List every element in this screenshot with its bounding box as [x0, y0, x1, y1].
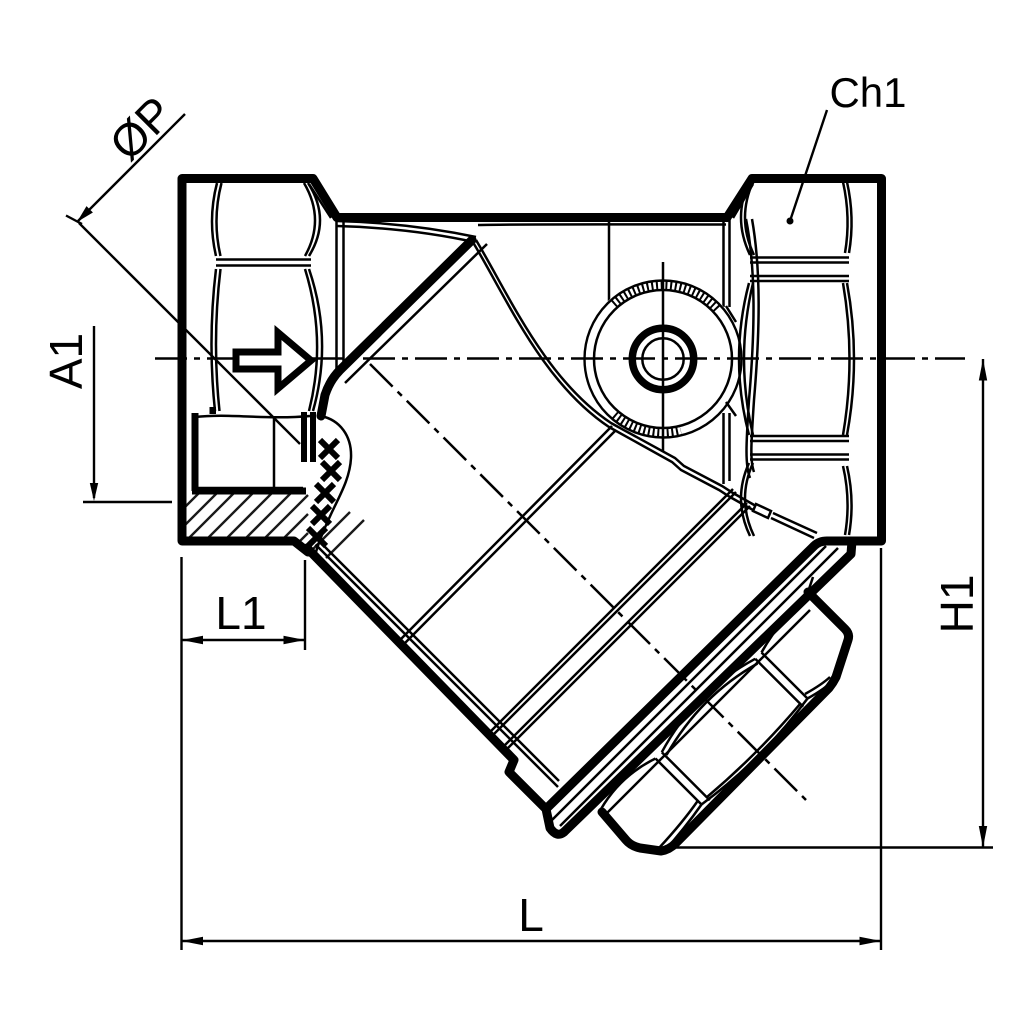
svg-text:L1: L1	[215, 587, 266, 639]
svg-text:H1: H1	[931, 575, 983, 634]
svg-text:L: L	[518, 889, 544, 941]
svg-text:A1: A1	[40, 333, 92, 389]
svg-text:Ch1: Ch1	[829, 69, 906, 116]
